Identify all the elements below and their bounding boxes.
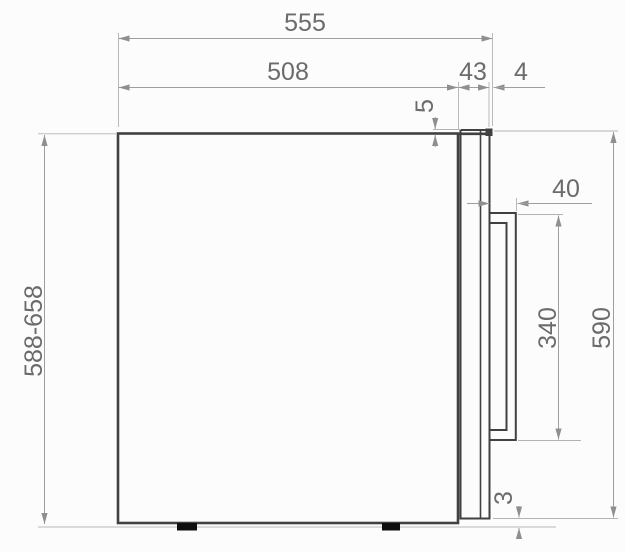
dimension-label-555: 555 xyxy=(284,9,326,37)
dimension-door-thickness: 43 xyxy=(459,58,490,127)
technical-drawing-page: 555 508 43 4 5 xyxy=(0,0,625,552)
dimension-label-43: 43 xyxy=(459,58,487,86)
front-foot xyxy=(382,523,400,531)
dimension-label-3: 3 xyxy=(490,491,518,505)
dimension-door-bottom-gap: 3 xyxy=(490,491,519,539)
dimension-front-trim-gap: 4 xyxy=(494,58,546,88)
dimension-overall-height-range: 588-658 xyxy=(20,134,116,524)
handle-inner-profile xyxy=(489,223,507,430)
dimension-label-508: 508 xyxy=(267,58,309,86)
dimension-handle-depth: 40 xyxy=(467,175,592,211)
rear-foot xyxy=(177,523,197,531)
dimension-label-5: 5 xyxy=(411,99,439,113)
door-top-trim xyxy=(486,129,493,137)
door-panel xyxy=(461,130,490,519)
handle-outer-profile xyxy=(489,213,516,440)
dimension-door-top-offset: 5 xyxy=(411,99,461,147)
dimension-label-40: 40 xyxy=(552,175,580,203)
appliance-dimension-drawing: 555 508 43 4 5 xyxy=(0,0,625,552)
dimension-handle-length: 340 xyxy=(518,215,581,441)
dimension-label-588-658: 588-658 xyxy=(20,285,48,377)
dimension-label-340: 340 xyxy=(534,307,562,349)
appliance-body xyxy=(38,129,556,531)
dimension-label-4: 4 xyxy=(514,58,528,86)
cabinet-outline xyxy=(118,134,458,524)
dimension-body-depth: 508 xyxy=(119,58,459,130)
dimension-label-590: 590 xyxy=(588,307,616,349)
